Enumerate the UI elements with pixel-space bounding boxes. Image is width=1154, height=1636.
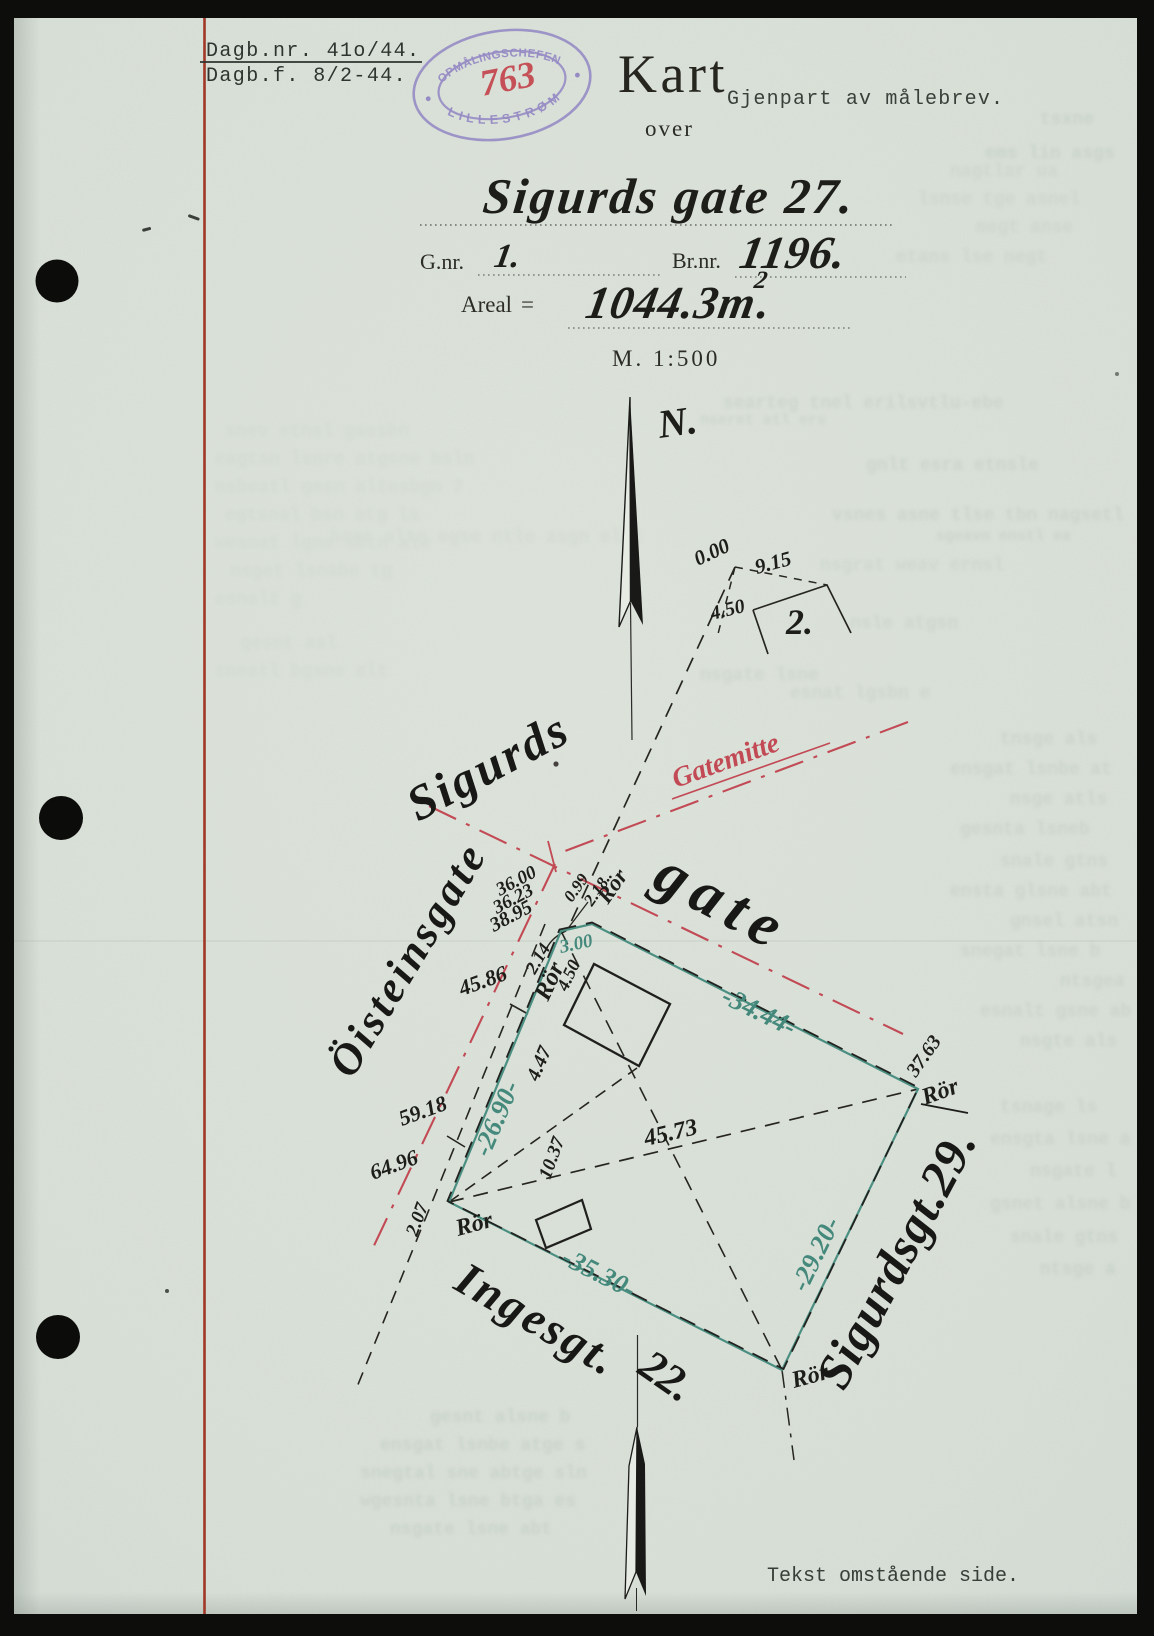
- svg-text:1044.3m: 1044.3m: [582, 278, 760, 329]
- svg-text:etans lse negt: etans lse negt: [896, 248, 1047, 268]
- svg-text:Dagb.f. 8/2-44.: Dagb.f. 8/2-44.: [206, 65, 407, 88]
- svg-text:snegat lsne b: snegat lsne b: [960, 942, 1100, 962]
- svg-text:gnlt esra etnsle: gnlt esra etnsle: [866, 456, 1039, 476]
- svg-text:Br.nr.: Br.nr.: [672, 248, 721, 273]
- svg-text:wgesnta lsne btga es: wgesnta lsne btga es: [360, 1492, 576, 1512]
- svg-text:nsgte als: nsgte als: [1020, 1032, 1117, 1052]
- svg-text:nsgrat weav ernsl: nsgrat weav ernsl: [820, 556, 1004, 576]
- svg-text:sneatl bgsne alt: sneatl bgsne alt: [215, 662, 388, 682]
- svg-text:ensta glsne abt: ensta glsne abt: [950, 882, 1112, 902]
- svg-text:ensgta lsne a: ensgta lsne a: [990, 1130, 1131, 1150]
- svg-text:ems lin asgs: ems lin asgs: [985, 144, 1115, 164]
- svg-text:snev etnsl gaesbn: snev etnsl gaesbn: [225, 422, 409, 442]
- svg-text:ntsgea: ntsgea: [1060, 972, 1125, 992]
- svg-text:Areal: Areal: [461, 292, 512, 317]
- svg-text:ensgat lsnbe at: ensgat lsnbe at: [950, 760, 1112, 780]
- svg-text:Kart: Kart: [618, 44, 728, 104]
- svg-text:snale gtns: snale gtns: [1010, 1228, 1118, 1248]
- svg-text:G.nr.: G.nr.: [420, 249, 464, 274]
- svg-text:Gjenpart av målebrev.: Gjenpart av målebrev.: [727, 88, 1004, 111]
- svg-text:gesnt asl: gesnt asl: [240, 634, 337, 654]
- svg-text:gsnet alsne b: gsnet alsne b: [990, 1195, 1130, 1215]
- svg-text:Dagb.nr. 41o/44.: Dagb.nr. 41o/44.: [206, 40, 420, 63]
- svg-text:sgeavn enstl ea: sgeavn enstl ea: [936, 528, 1071, 545]
- svg-text:searteg tnel erilsvtlu-ebe: searteg tnel erilsvtlu-ebe: [723, 394, 1004, 414]
- svg-text:1196.: 1196.: [736, 228, 851, 279]
- svg-text:ensgat lsnbe atge s: ensgat lsnbe atge s: [380, 1436, 585, 1456]
- svg-text:lsnse tge asnel: lsnse tge asnel: [918, 190, 1080, 210]
- svg-text:megt anse: megt anse: [976, 218, 1073, 238]
- svg-text:gesnt alsne b: gesnt alsne b: [430, 1408, 570, 1428]
- svg-text:nsbeatl gesn altesbgn 7: nsbeatl gesn altesbgn 7: [215, 478, 463, 498]
- svg-text:egtsnal bsn etg ls: egtsnal bsn etg ls: [225, 506, 419, 526]
- svg-text:tsnage ls: tsnage ls: [1000, 1098, 1097, 1118]
- svg-text:esnalt g: esnalt g: [215, 590, 301, 610]
- svg-text:nseret atl ers: nseret atl ers: [700, 412, 826, 429]
- svg-text:over: over: [645, 116, 694, 141]
- svg-text:esnalt gsne ab: esnalt gsne ab: [980, 1002, 1131, 1022]
- svg-text:tsxne: tsxne: [1040, 110, 1094, 130]
- svg-text:bsne altn egse ntle asgn elst: bsne altn egse ntle asgn elst: [330, 528, 643, 548]
- svg-text:nsgate lsne: nsgate lsne: [700, 666, 819, 686]
- svg-text:nagtlar ua: nagtlar ua: [950, 162, 1058, 182]
- svg-text:tnsge als: tnsge als: [1000, 730, 1097, 750]
- svg-text:eagtsn lsnre atgsne bsln: eagtsn lsnre atgsne bsln: [215, 450, 474, 470]
- svg-text:ntsge a: ntsge a: [1040, 1260, 1116, 1280]
- svg-text:nsget lsnabe tg: nsget lsnabe tg: [230, 562, 392, 582]
- svg-text:vsnes asne tlse tbn nagsetl: vsnes asne tlse tbn nagsetl: [832, 506, 1124, 526]
- svg-text:nsgate l: nsgate l: [1030, 1162, 1117, 1182]
- svg-text:nsle atgsn: nsle atgsn: [850, 614, 958, 634]
- svg-text:snale gtns: snale gtns: [1000, 852, 1108, 872]
- svg-text:gnsel atsn: gnsel atsn: [1010, 912, 1118, 932]
- svg-text:nsgate lsne abt: nsgate lsne abt: [390, 1520, 552, 1540]
- svg-text:nsge atls: nsge atls: [1010, 790, 1107, 810]
- svg-text:=: =: [521, 292, 534, 317]
- svg-text:snegtal sne abtge sln: snegtal sne abtge sln: [360, 1464, 587, 1484]
- svg-text:M. 1:500: M. 1:500: [612, 346, 720, 371]
- svg-text:N.: N.: [654, 397, 700, 447]
- svg-text:2.: 2.: [785, 602, 813, 642]
- svg-text:gesnta lsneb: gesnta lsneb: [960, 820, 1090, 840]
- svg-text:Tekst omstående side.: Tekst omstående side.: [767, 1565, 1019, 1588]
- svg-text:esnat lgsbn e: esnat lgsbn e: [790, 684, 930, 704]
- svg-text:Sigurds gate 27.: Sigurds gate 27.: [480, 168, 858, 224]
